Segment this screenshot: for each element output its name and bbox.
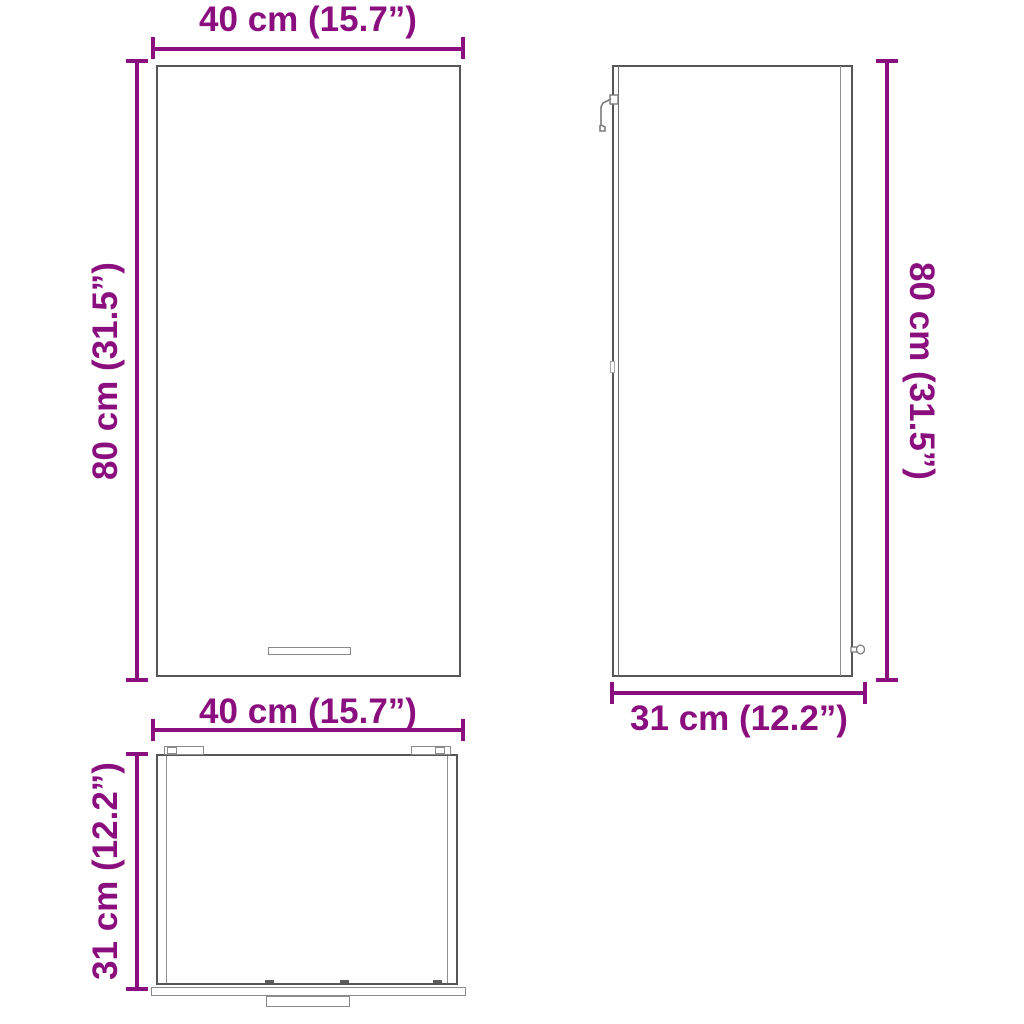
front-height-label: 80 cm (31.5”) bbox=[88, 191, 124, 551]
dimension-diagram: 40 cm (15.7”) 80 cm (31.5”) 80 cm (31.5”… bbox=[0, 0, 1024, 1024]
front-height-dimension-line bbox=[135, 62, 139, 680]
door-handle-top-view bbox=[266, 996, 350, 1007]
hinge-mid-mark bbox=[610, 361, 615, 373]
side-depth-dimension-line bbox=[612, 691, 865, 695]
top-width-label: 40 cm (15.7”) bbox=[130, 694, 486, 730]
front-view-outline bbox=[156, 65, 461, 677]
top-depth-label: 31 cm (12.2”) bbox=[88, 691, 124, 1024]
left-side-panel-line bbox=[166, 756, 167, 983]
wall-bracket-right bbox=[411, 746, 451, 755]
hinge-mark-2 bbox=[340, 980, 349, 983]
side-depth-label: 31 cm (12.2”) bbox=[589, 701, 889, 737]
door-edge-line bbox=[618, 66, 619, 676]
back-panel-line bbox=[840, 66, 841, 676]
top-depth-tick-bottom bbox=[126, 987, 148, 991]
front-height-tick-top bbox=[126, 59, 148, 63]
top-width-tick-right bbox=[461, 719, 465, 741]
side-height-dimension-line bbox=[885, 62, 889, 680]
side-view-outline bbox=[612, 65, 853, 677]
top-view-outline bbox=[156, 754, 458, 985]
hinge-icon bbox=[594, 88, 620, 142]
hinge-mark-1 bbox=[265, 980, 274, 983]
front-width-dimension-line bbox=[153, 47, 463, 51]
front-width-tick-left bbox=[151, 37, 155, 59]
side-height-label: 80 cm (31.5”) bbox=[903, 191, 939, 551]
front-width-label: 40 cm (15.7”) bbox=[130, 2, 486, 38]
wall-fitting-knob-icon bbox=[850, 642, 868, 658]
wall-bracket-right-detail bbox=[435, 747, 445, 754]
door-handle bbox=[268, 647, 351, 655]
front-width-tick-right bbox=[461, 37, 465, 59]
side-height-tick-top bbox=[876, 59, 898, 63]
hinge-mark-3 bbox=[433, 980, 442, 983]
top-width-dimension-line bbox=[153, 728, 463, 732]
door-panel-top-view bbox=[151, 987, 466, 996]
top-depth-tick-top bbox=[126, 752, 148, 756]
front-height-tick-bottom bbox=[126, 678, 148, 682]
top-width-tick-left bbox=[151, 719, 155, 741]
right-side-panel-line bbox=[447, 756, 448, 983]
side-height-tick-bottom bbox=[876, 678, 898, 682]
wall-bracket-left-detail bbox=[167, 747, 177, 754]
top-depth-dimension-line bbox=[135, 755, 139, 989]
